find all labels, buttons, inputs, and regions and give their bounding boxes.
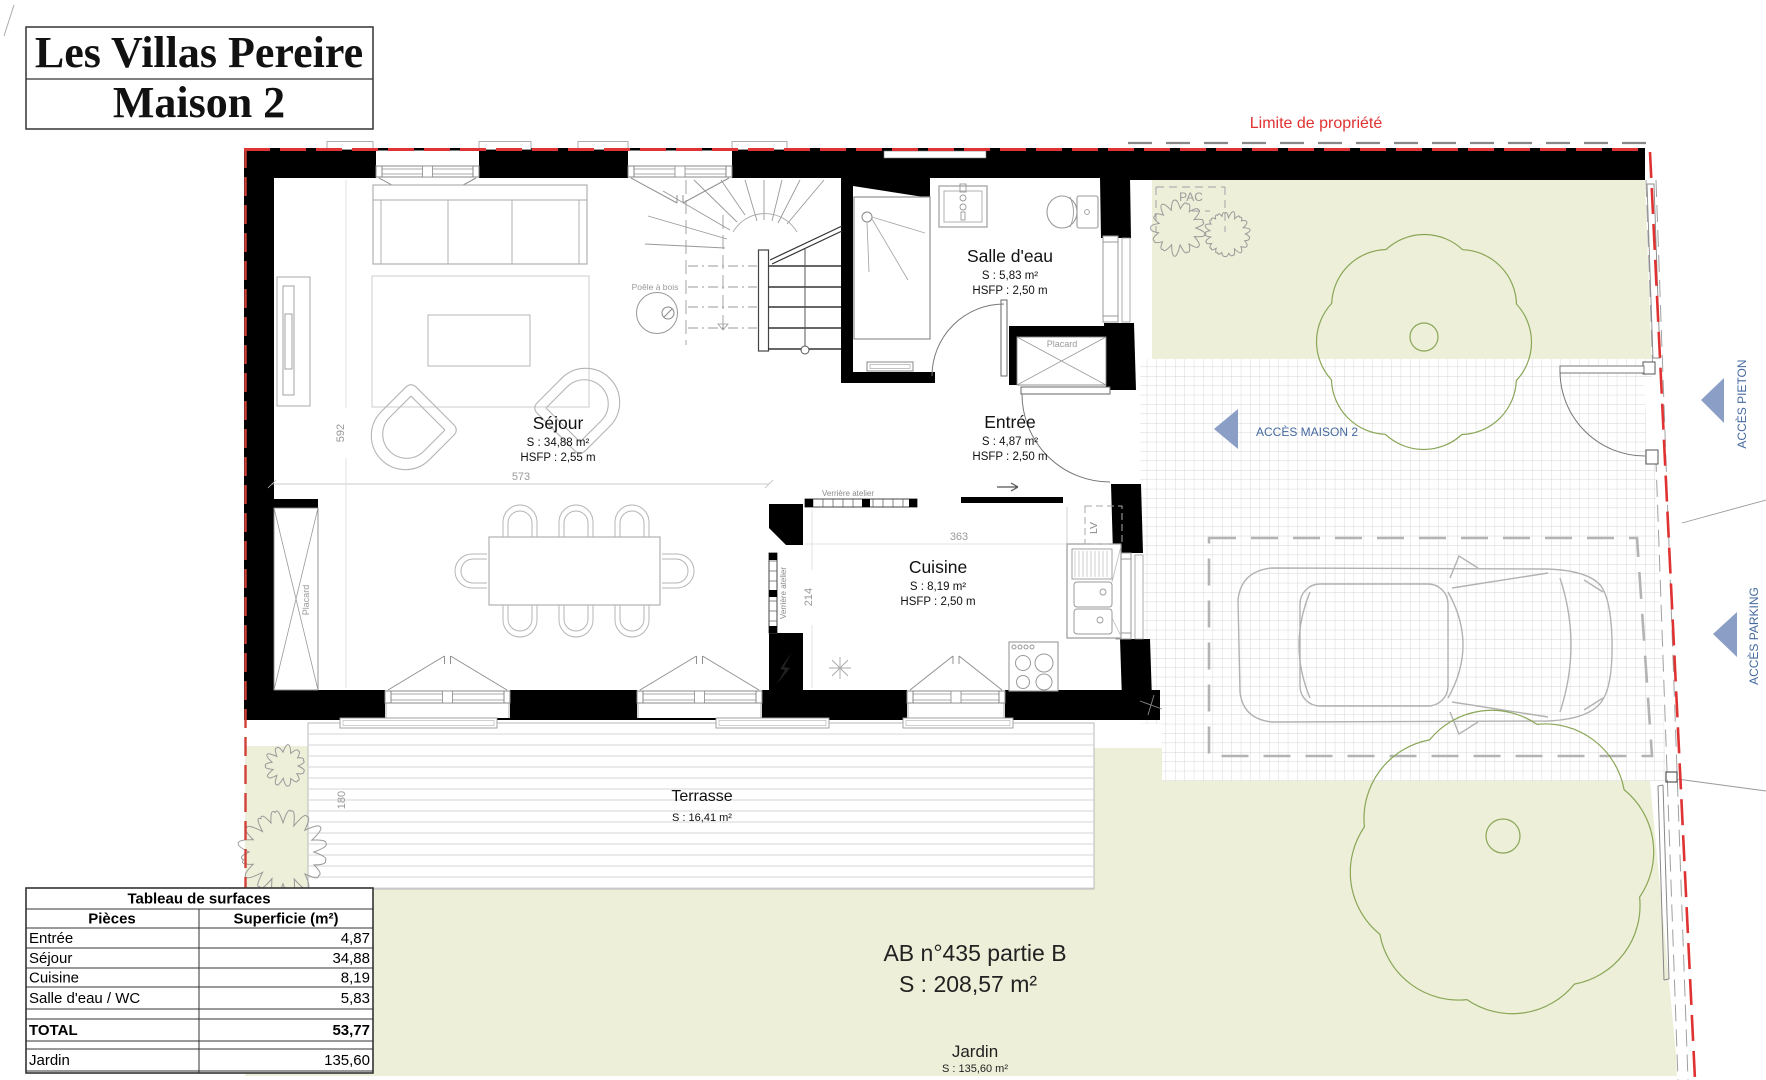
svg-text:Tableau de surfaces: Tableau de surfaces (127, 891, 270, 908)
svg-text:53,77: 53,77 (332, 1022, 370, 1039)
svg-text:S : 5,83 m²: S : 5,83 m² (982, 270, 1038, 282)
svg-text:214: 214 (803, 588, 815, 606)
svg-text:Les Villas Pereire: Les Villas Pereire (35, 28, 363, 77)
svg-text:Verrière atelier: Verrière atelier (779, 567, 788, 619)
svg-text:Cuisine: Cuisine (29, 970, 79, 987)
svg-text:HSFP : 2,50 m: HSFP : 2,50 m (972, 285, 1047, 297)
svg-text:Cuisine: Cuisine (909, 557, 967, 577)
svg-text:HSFP : 2,50 m: HSFP : 2,50 m (900, 596, 975, 608)
svg-text:Entrée: Entrée (984, 412, 1036, 432)
svg-text:S : 4,87 m²: S : 4,87 m² (982, 436, 1038, 448)
svg-text:S : 16,41 m²: S : 16,41 m² (672, 812, 732, 824)
svg-text:S : 208,57 m²: S : 208,57 m² (899, 971, 1037, 997)
svg-text:Jardin: Jardin (29, 1052, 70, 1069)
svg-text:592: 592 (335, 424, 347, 442)
svg-text:ACCÈS MAISON 2: ACCÈS MAISON 2 (1256, 424, 1358, 439)
svg-text:HSFP : 2,55 m: HSFP : 2,55 m (520, 452, 595, 464)
svg-text:Maison 2: Maison 2 (113, 78, 285, 127)
svg-text:Limite de propriété: Limite de propriété (1250, 115, 1383, 132)
svg-text:4,87: 4,87 (341, 930, 370, 947)
svg-text:HSFP : 2,50 m: HSFP : 2,50 m (972, 451, 1047, 463)
svg-text:Séjour: Séjour (533, 413, 584, 433)
svg-text:363: 363 (950, 531, 968, 543)
svg-text:LV: LV (1088, 522, 1100, 534)
svg-text:S : 135,60 m²: S : 135,60 m² (942, 1063, 1008, 1075)
svg-text:Jardin: Jardin (952, 1042, 998, 1061)
svg-text:Salle d'eau / WC: Salle d'eau / WC (29, 990, 140, 1007)
svg-text:ACCÈS PIETON: ACCÈS PIETON (1734, 359, 1749, 448)
svg-text:PAC: PAC (1179, 190, 1203, 204)
svg-text:S : 34,88 m²: S : 34,88 m² (527, 437, 590, 449)
svg-text:Séjour: Séjour (29, 950, 72, 967)
svg-text:Poêle à bois: Poêle à bois (632, 282, 679, 292)
svg-text:135,60: 135,60 (324, 1052, 370, 1069)
svg-text:S : 8,19 m²: S : 8,19 m² (910, 581, 966, 593)
svg-text:5,83: 5,83 (341, 990, 370, 1007)
svg-text:AB n°435 partie B: AB n°435 partie B (883, 940, 1066, 966)
svg-text:Placard: Placard (301, 585, 311, 616)
svg-text:573: 573 (512, 471, 530, 483)
svg-text:Pièces: Pièces (88, 911, 136, 928)
svg-text:Entrée: Entrée (29, 930, 73, 947)
svg-text:8,19: 8,19 (341, 970, 370, 987)
svg-text:Verrière atelier: Verrière atelier (822, 489, 874, 498)
svg-text:34,88: 34,88 (332, 950, 370, 967)
svg-text:180: 180 (336, 791, 348, 809)
svg-text:ACCÈS PARKING: ACCÈS PARKING (1746, 587, 1761, 685)
svg-text:Salle d'eau: Salle d'eau (967, 246, 1053, 266)
svg-text:Superficie (m²): Superficie (m²) (233, 911, 338, 928)
svg-text:Placard: Placard (1047, 339, 1078, 349)
svg-text:Terrasse: Terrasse (671, 788, 732, 805)
svg-text:TOTAL: TOTAL (29, 1022, 78, 1039)
